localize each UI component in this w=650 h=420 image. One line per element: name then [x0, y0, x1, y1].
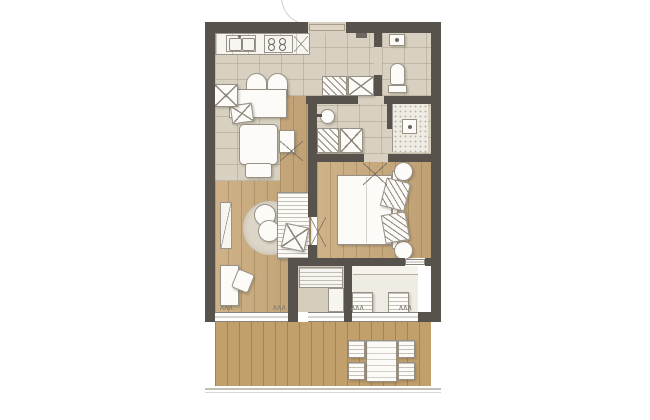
wardrobe-closet	[214, 84, 238, 107]
drain-dot	[408, 125, 412, 129]
toilet-tank	[388, 85, 407, 93]
zigzag-mark: ∧∧∧	[272, 304, 285, 312]
bedroom-loggia-glass-door	[405, 259, 425, 265]
sink-faucet	[238, 35, 241, 38]
entry-door-leaf	[309, 24, 345, 31]
door-mark-living-bedroom	[310, 217, 326, 247]
ottoman	[245, 163, 272, 178]
zigzag-mark: ∧∧∧	[350, 304, 363, 312]
terrace-edge-line-2	[205, 392, 441, 393]
outdoor-chair	[398, 340, 415, 358]
floorplan-canvas: ∧∧∧ ∧∧∧ ∧∧∧ ∧∧∧	[0, 0, 650, 420]
basin-drain-dot	[395, 38, 399, 42]
wall-fixture	[356, 33, 367, 38]
armchair	[239, 124, 278, 165]
wall-wc-jamb-top	[374, 33, 382, 47]
outdoor-chair	[348, 362, 365, 380]
wall-bath-left	[308, 96, 317, 162]
outdoor-table	[366, 340, 397, 382]
door-mark-bedroom-entry	[363, 163, 387, 185]
wc-door-threshold	[374, 47, 382, 75]
outdoor-chair	[398, 362, 415, 380]
toilet-bowl	[390, 63, 405, 85]
outdoor-chair	[348, 340, 365, 358]
washbasin	[320, 109, 335, 124]
loggia-shelf	[353, 266, 418, 275]
bed-pillow	[381, 211, 411, 244]
wall-bedroom-bottom	[352, 258, 405, 266]
wall-top-right	[346, 22, 441, 33]
window-loggia	[352, 312, 418, 322]
wall-utility-top	[288, 258, 352, 266]
daybed-cushion	[281, 223, 310, 252]
louvered-cabinet	[299, 267, 343, 288]
storage-unit	[328, 288, 344, 312]
wall-bath-top-right	[384, 96, 431, 104]
wall-right	[431, 33, 441, 322]
bath-linen-closet	[317, 128, 339, 153]
nightstand	[394, 162, 413, 181]
wall-shower-stub	[387, 104, 392, 129]
bedroom-door-threshold	[364, 154, 388, 162]
upper-cabinet-mark	[294, 36, 308, 52]
wall-left	[205, 33, 215, 322]
wall-top-left	[205, 22, 308, 33]
cooktop-burner	[279, 44, 286, 51]
sink-bowl-right	[242, 38, 255, 51]
wall-wc-jamb-bottom	[374, 75, 382, 96]
door-mark-hall-living	[280, 141, 303, 161]
wall-living-bedroom-upper	[308, 162, 317, 217]
bath-door-threshold	[358, 96, 384, 104]
wall-bedroom-top	[388, 154, 431, 162]
wall-bedroom-bottom-stub	[425, 258, 441, 266]
wall-utility-right	[344, 258, 352, 322]
bed-sheet-line	[366, 177, 367, 243]
cooktop-burner	[268, 44, 275, 51]
sink-bowl-left	[229, 38, 242, 51]
terrace-edge-line	[205, 388, 441, 390]
window-pier-right	[418, 312, 431, 322]
zigzag-mark: ∧∧∧	[398, 304, 411, 312]
window-living	[215, 312, 288, 322]
wall-nook-bottom	[317, 154, 364, 162]
zigzag-mark: ∧∧∧	[219, 304, 232, 312]
hall-closet-hatched	[322, 76, 347, 96]
hall-closet-x	[348, 76, 374, 96]
bath-wardrobe-x	[340, 128, 363, 153]
wall-utility-left	[288, 258, 298, 322]
radiator-bench	[220, 202, 232, 249]
window-utility	[308, 312, 344, 322]
